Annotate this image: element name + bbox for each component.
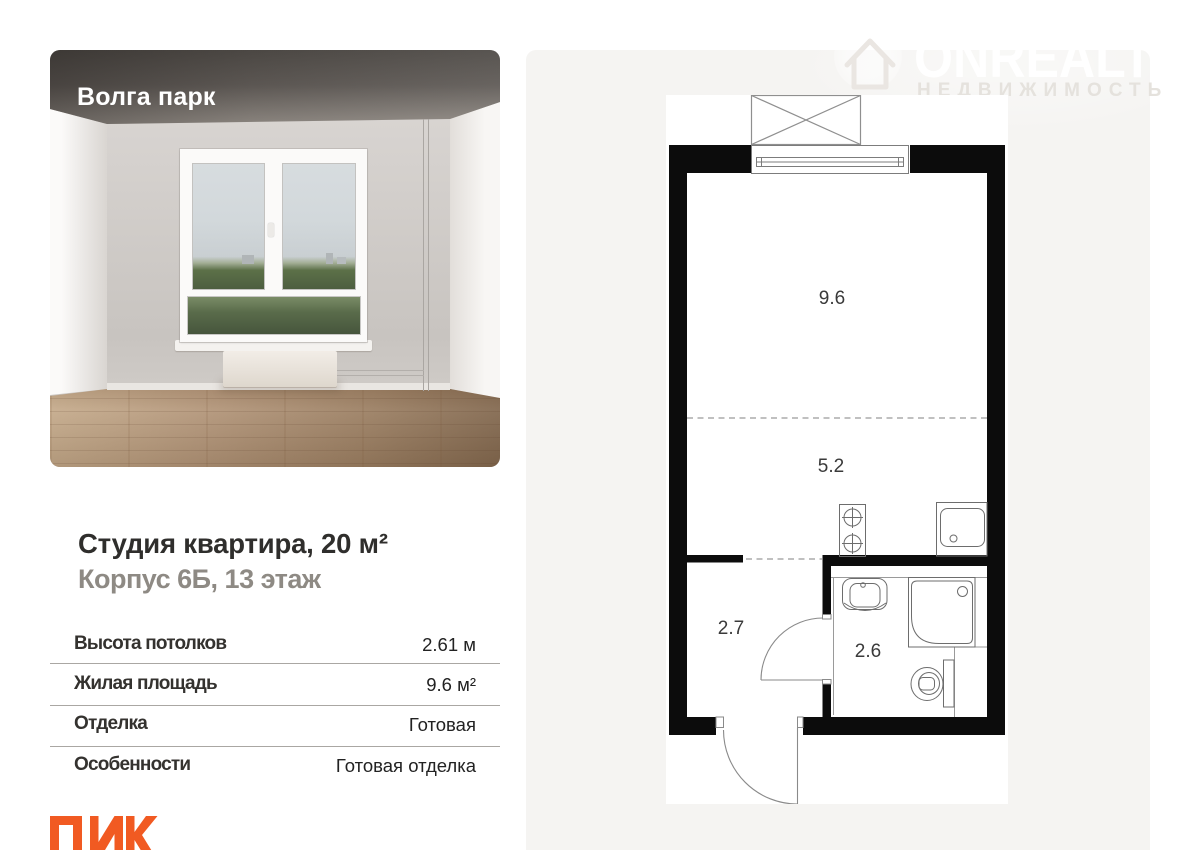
svg-text:2.6: 2.6 xyxy=(855,641,881,662)
svg-text:9.6: 9.6 xyxy=(819,288,845,309)
svg-text:5.2: 5.2 xyxy=(818,456,844,477)
svg-text:2.7: 2.7 xyxy=(718,618,744,639)
